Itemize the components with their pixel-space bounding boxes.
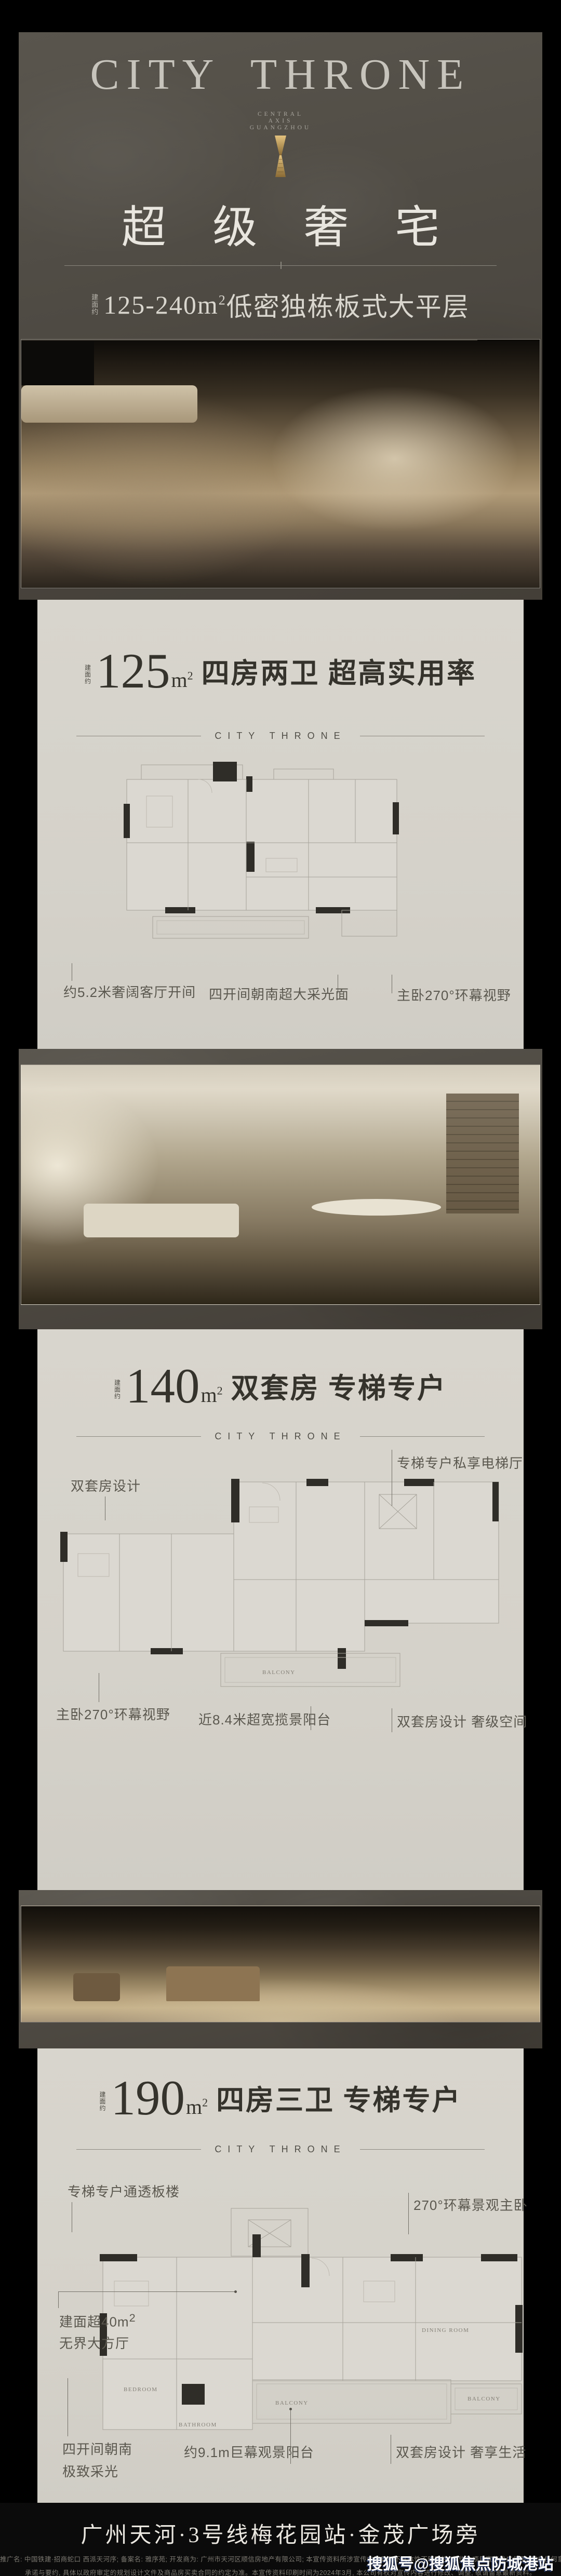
hero-panel: CITY THRONE CENTRAL AXIS GUANGZHOU 超 级 奢… — [19, 32, 542, 600]
canton-tower-icon — [273, 136, 288, 177]
hero-area-line: 建面约 125-240m2 低密独栋板式大平层 — [91, 286, 470, 323]
brand-title: CITY THRONE — [90, 51, 471, 99]
location-headline: 广州天河·3号线梅花园站·金茂广场旁 — [0, 2517, 561, 2549]
tv-shape — [21, 341, 94, 385]
annotation-dual-suite-life: 双套房设计 奢享生活 — [396, 2442, 526, 2461]
brand-divider: CITY THRONE — [37, 2144, 524, 2155]
leader-line — [99, 1673, 99, 1702]
brand-divider-label: CITY THRONE — [215, 2144, 346, 2155]
section-heading-190: 建面约 190 m2 四房三卫 专梯专户 — [37, 2076, 524, 2120]
leader-line — [105, 1496, 105, 1520]
dining-table-shape — [312, 1199, 442, 1216]
living-room-photo — [21, 339, 540, 588]
leader-line — [72, 963, 72, 981]
annotation-slab-building: 专梯专户通透板楼 — [68, 2181, 180, 2201]
photo-band-2 — [19, 1049, 542, 1329]
section-heading-140: 建面约 140 m2 双套房 专梯专户 — [37, 1365, 524, 1408]
annotation-south-bays: 四开间朝南 — [62, 2439, 132, 2458]
heading-area-prefix: 建面约 — [85, 665, 92, 685]
sofa-shape — [84, 1204, 239, 1237]
heading-title: 双套房 专梯专户 — [231, 1365, 447, 1406]
tagline-line-2: AXIS — [250, 118, 311, 125]
room-label-balcony-main: BALCONY — [275, 2400, 309, 2406]
heading-area-number: 190 — [111, 2076, 185, 2120]
room-label-balcony: BALCONY — [262, 1669, 296, 1676]
annotation-luxury-space: 双套房设计 奢级空间 — [397, 1711, 527, 1731]
annotation-master-panorama: 270°环幕景观主卧 — [413, 2195, 528, 2214]
brand-divider-label: CITY THRONE — [215, 731, 346, 741]
brand-divider-label: CITY THRONE — [215, 1431, 346, 1442]
leader-line — [391, 2435, 391, 2464]
photo-band-3 — [19, 1890, 542, 2048]
divider-line-left — [76, 736, 201, 736]
promo-page: CITY THRONE CENTRAL AXIS GUANGZHOU 超 级 奢… — [0, 0, 561, 2576]
annotation-max-light: 极致采光 — [62, 2461, 118, 2480]
area-range: 125-240m2 — [103, 290, 226, 320]
leader-line — [392, 1450, 392, 1506]
annotation-grand-hall-line1: 建面超40m2 — [59, 2311, 136, 2331]
chair-shape — [73, 1973, 120, 2001]
lounge-photo — [21, 1906, 540, 2022]
annotation-giant-balcony: 约9.1m巨幕观景阳台 — [184, 2442, 314, 2461]
heading-area-unit: m2 — [171, 668, 193, 692]
footer: 广州天河·3号线梅花园站·金茂广场旁 推广名: 中国铁建·招商蛇口 西派天河序;… — [0, 2503, 561, 2576]
annotation-dual-suite: 双套房设计 — [71, 1476, 141, 1495]
brand-divider: CITY THRONE — [37, 1431, 524, 1442]
leader-dot — [234, 2290, 237, 2293]
leader-line — [58, 2291, 59, 2308]
section-heading-125: 建面约 125 m2 四房两卫 超高实用率 — [37, 650, 524, 693]
sofa-shape — [21, 385, 197, 423]
divider-line-right — [360, 736, 485, 736]
dining-room-photo — [21, 1064, 540, 1305]
heading-title: 四房三卫 专梯专户 — [216, 2077, 462, 2118]
divider-line-right — [360, 1436, 485, 1437]
leader-line — [290, 2410, 291, 2464]
annotation-grand-hall-line2: 无界大方厅 — [59, 2333, 129, 2352]
annotation-master-view: 主卧270°环幕视野 — [397, 985, 511, 1004]
annotation-south-light: 四开间朝南超大采光面 — [209, 984, 349, 1003]
divider-line-left — [76, 2149, 201, 2150]
heading-area-number: 125 — [96, 650, 170, 693]
heading-area-unit: m2 — [186, 2095, 208, 2119]
leader-line — [408, 2193, 409, 2234]
brand-tagline: CENTRAL AXIS GUANGZHOU — [250, 111, 311, 131]
divider-tick — [280, 262, 282, 269]
shelf-shape — [446, 1094, 519, 1213]
section-plan-125: 建面约 125 m2 四房两卫 超高实用率 CITY THRONE — [37, 600, 524, 1049]
room-label-bathroom: BATHROOM — [179, 2422, 217, 2428]
annotation-master-view: 主卧270°环幕视野 — [56, 1704, 170, 1723]
divider-line-left — [76, 1436, 201, 1437]
floor-plan-140: BALCONY — [47, 1476, 514, 1704]
hero-divider — [64, 261, 497, 269]
tagline-line-3: GUANGZHOU — [250, 125, 311, 131]
room-label-balcony-right: BALCONY — [468, 2396, 501, 2402]
room-label-dining: DINING ROOM — [422, 2327, 469, 2334]
area-prefix: 建面约 — [91, 294, 99, 316]
room-label-bedroom: BEDROOM — [124, 2386, 158, 2393]
heading-area-number: 140 — [126, 1365, 200, 1408]
tagline-line-1: CENTRAL — [250, 111, 311, 118]
heading-title: 四房两卫 超高实用率 — [202, 650, 477, 691]
area-description: 低密独栋板式大平层 — [226, 286, 470, 323]
leader-line — [72, 2202, 72, 2232]
section-plan-190: 建面约 190 m2 四房三卫 专梯专户 CITY THRONE — [37, 2048, 524, 2503]
heading-area-prefix: 建面约 — [99, 2092, 106, 2112]
heading-area-unit: m2 — [201, 1383, 222, 1407]
section-plan-140: 建面约 140 m2 双套房 专梯专户 CITY THRONE — [37, 1329, 524, 1890]
floor-plan-125 — [115, 754, 414, 962]
leader-line — [392, 975, 392, 993]
leader-line — [58, 2291, 235, 2292]
sofa-shape — [166, 1966, 260, 2001]
hero-headline: 超 级 奢 宅 — [122, 204, 458, 251]
sohu-watermark: 搜狐号@搜狐焦点防城港站 — [367, 2551, 554, 2574]
heading-area-prefix: 建面约 — [114, 1380, 122, 1400]
leader-line — [392, 1708, 392, 1732]
leader-line — [311, 1706, 311, 1730]
annotation-private-lift: 专梯专户私享电梯厅 — [397, 1453, 523, 1472]
divider-line-right — [360, 2149, 485, 2150]
annotation-living-bay: 约5.2米奢阔客厅开间 — [63, 982, 196, 1001]
leader-line — [68, 2378, 68, 2436]
brand-divider: CITY THRONE — [37, 731, 524, 741]
